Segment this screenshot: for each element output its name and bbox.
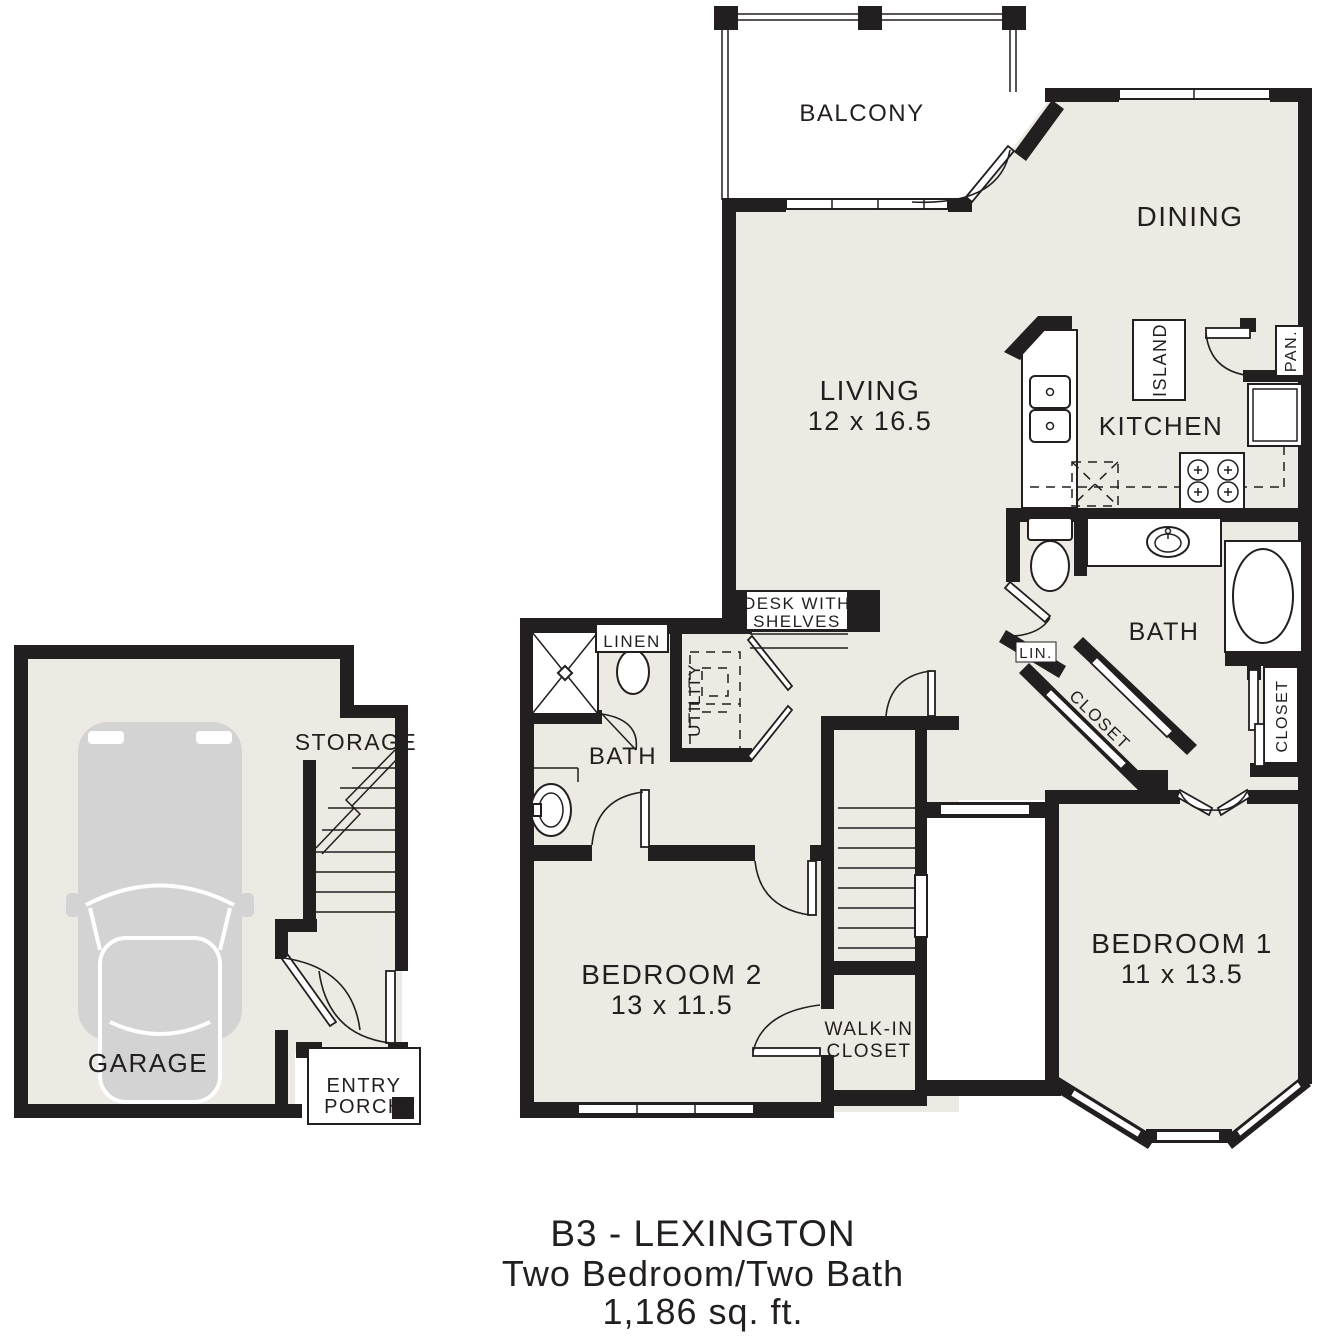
bedroom2-dims: 13 x 11.5 bbox=[611, 990, 734, 1020]
plan-title: B3 - LEXINGTON bbox=[550, 1213, 855, 1254]
kitchen-counter-icon bbox=[1022, 330, 1077, 508]
entry-porch-label-2: PORCH bbox=[324, 1096, 404, 1118]
master-vanity-sink-icon bbox=[1087, 518, 1221, 566]
island-label: ISLAND bbox=[1150, 323, 1170, 397]
double-sink-icon bbox=[1030, 376, 1070, 442]
bathtub-icon bbox=[1225, 541, 1302, 652]
master-toilet-icon bbox=[1028, 518, 1072, 591]
living-label: LIVING bbox=[820, 375, 921, 406]
balcony-label: BALCONY bbox=[799, 100, 924, 127]
storage-label: STORAGE bbox=[295, 729, 418, 755]
dining-label: DINING bbox=[1137, 201, 1244, 232]
utility-label: UTILITY bbox=[685, 663, 704, 737]
stair-void bbox=[927, 818, 1047, 1080]
plan-subtitle: Two Bedroom/Two Bath bbox=[502, 1253, 904, 1294]
floor-plan-drawing: BALCONY DINING LIVING 12 x 16.5 KITCHEN … bbox=[0, 0, 1319, 1336]
refrigerator-icon bbox=[1248, 384, 1302, 446]
pantry-label: PAN. bbox=[1283, 330, 1300, 372]
master-linen-label: LIN. bbox=[1019, 645, 1053, 662]
entry-porch-label-1: ENTRY bbox=[327, 1075, 402, 1097]
walkin-label-2: CLOSET bbox=[826, 1041, 911, 1062]
bedroom1-label: BEDROOM 1 bbox=[1091, 928, 1273, 959]
hall-bath-label: BATH bbox=[589, 743, 657, 770]
desk-label-2: SHELVES bbox=[753, 612, 841, 631]
living-dims: 12 x 16.5 bbox=[808, 406, 933, 436]
garage-label: GARAGE bbox=[88, 1048, 208, 1078]
title-block: B3 - LEXINGTON Two Bedroom/Two Bath 1,18… bbox=[502, 1213, 904, 1332]
walkin-label-1: WALK-IN bbox=[825, 1019, 914, 1040]
hall-linen-label: LINEN bbox=[603, 632, 661, 651]
bedroom2-label: BEDROOM 2 bbox=[581, 959, 763, 990]
kitchen-label: KITCHEN bbox=[1099, 411, 1224, 441]
master-bath-label: BATH bbox=[1129, 618, 1200, 646]
east-closet-label: CLOSET bbox=[1274, 679, 1291, 752]
plan-sqft: 1,186 sq. ft. bbox=[602, 1291, 803, 1332]
bedroom1-dims: 11 x 13.5 bbox=[1121, 959, 1244, 989]
range-burners-icon bbox=[1180, 453, 1244, 509]
desk-label-1: DESK WITH bbox=[743, 594, 851, 613]
floor-plan-page: BALCONY DINING LIVING 12 x 16.5 KITCHEN … bbox=[0, 0, 1319, 1336]
